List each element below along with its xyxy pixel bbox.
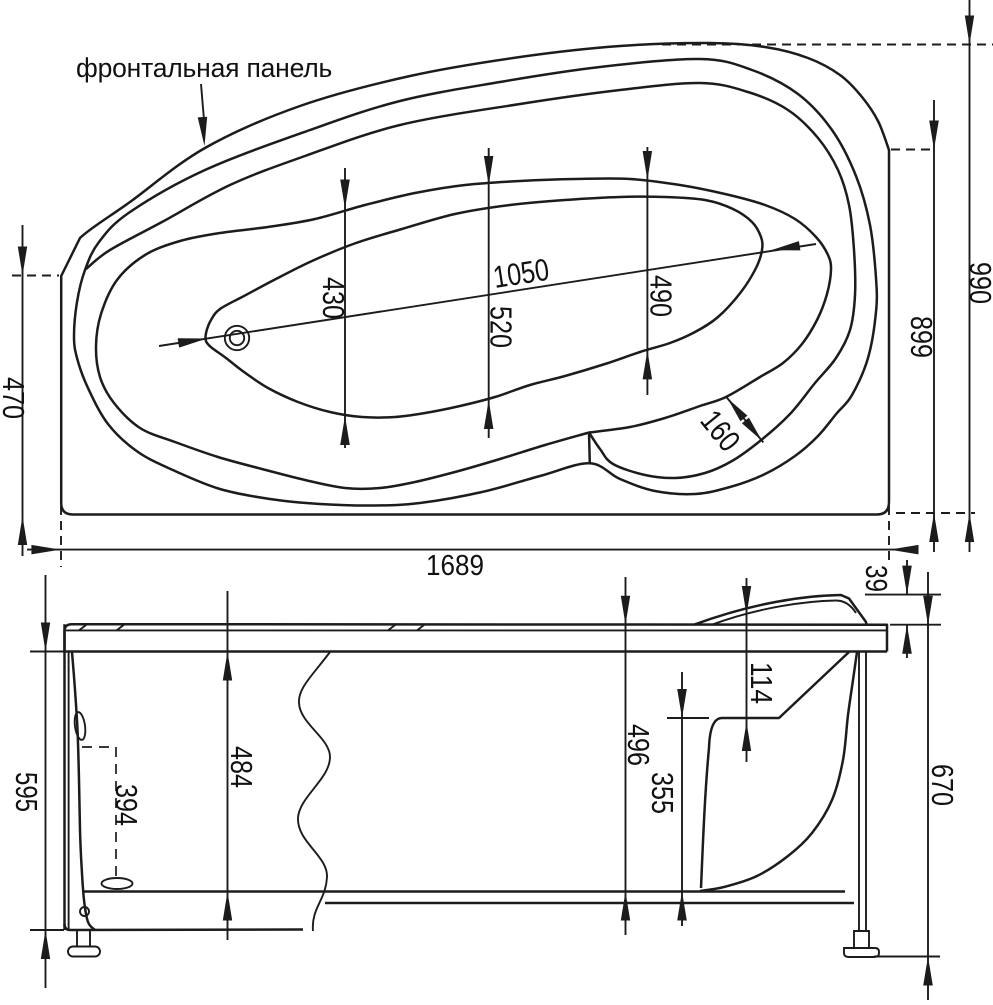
svg-text:899: 899 — [904, 316, 939, 358]
svg-text:470: 470 — [0, 377, 31, 419]
svg-text:430: 430 — [316, 277, 351, 319]
svg-text:520: 520 — [484, 306, 519, 348]
svg-text:фронтальная панель: фронтальная панель — [76, 53, 332, 83]
svg-text:114: 114 — [744, 662, 779, 704]
svg-text:670: 670 — [925, 764, 960, 806]
svg-text:394: 394 — [109, 784, 144, 826]
svg-text:39: 39 — [859, 565, 894, 592]
svg-text:1689: 1689 — [426, 550, 484, 582]
svg-text:990: 990 — [963, 262, 993, 304]
svg-text:484: 484 — [224, 746, 259, 788]
svg-text:595: 595 — [9, 772, 44, 812]
svg-text:496: 496 — [621, 724, 656, 766]
svg-text:490: 490 — [644, 275, 679, 317]
svg-text:355: 355 — [645, 772, 680, 814]
